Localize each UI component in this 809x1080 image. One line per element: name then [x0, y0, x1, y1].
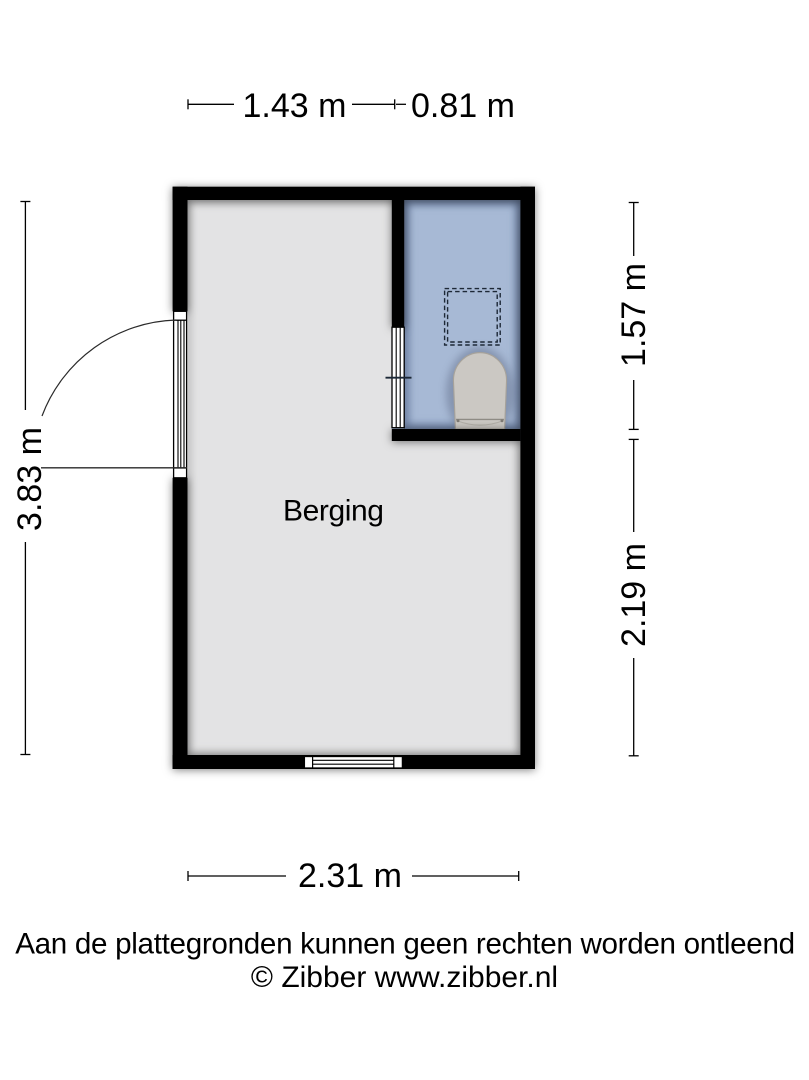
svg-text:2.31 m: 2.31 m	[298, 857, 402, 895]
svg-text:Berging: Berging	[283, 495, 384, 528]
svg-text:© Zibber www.zibber.nl: © Zibber www.zibber.nl	[251, 961, 558, 994]
svg-text:Aan de plattegronden kunnen ge: Aan de plattegronden kunnen geen rechten…	[15, 927, 795, 960]
svg-text:1.57 m: 1.57 m	[615, 263, 653, 367]
svg-text:3.83 m: 3.83 m	[11, 427, 49, 531]
svg-text:1.43 m: 1.43 m	[243, 87, 347, 125]
svg-text:0.81 m: 0.81 m	[411, 87, 515, 125]
svg-text:2.19 m: 2.19 m	[615, 543, 653, 647]
